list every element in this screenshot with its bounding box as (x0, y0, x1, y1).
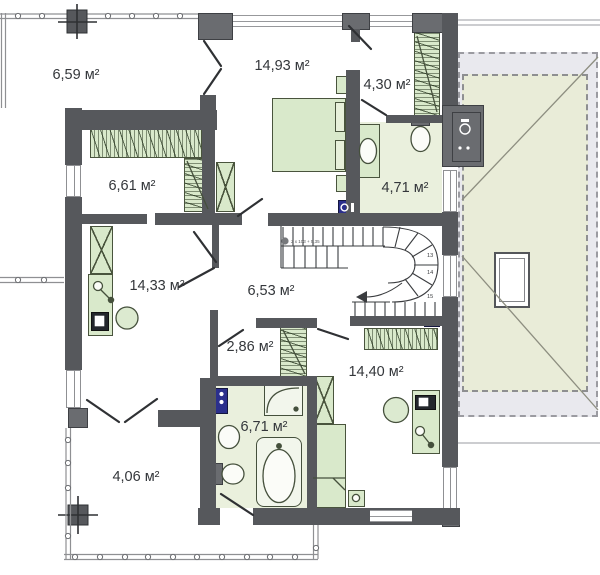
bathtub-basin (263, 450, 295, 503)
chimney-post (58, 4, 98, 534)
roof-ridge-lines (462, 57, 598, 410)
room-label-room-left: 14,33 м² (116, 278, 198, 294)
room-label-wardrobe: 4,30 м² (356, 77, 418, 93)
room-label-bath-right: 4,71 м² (372, 180, 438, 196)
room-label-bath-bottom: 6,71 м² (231, 419, 297, 435)
room-label-closet-left: 6,61 м² (96, 178, 168, 194)
chair (116, 307, 138, 329)
washbasin (360, 139, 377, 164)
desk-lamp (94, 282, 103, 291)
tub-faucet (277, 444, 282, 449)
room-label-bedroom-br: 14,40 м² (334, 364, 418, 380)
stair-note: 2 x 103 + 5,35 (291, 239, 320, 244)
room-label-balcony: 6,59 м² (38, 67, 114, 83)
stair-step-number: 15 (427, 294, 433, 300)
room-label-closet-mid: 2,86 м² (219, 339, 281, 355)
desk-lamp (416, 427, 425, 436)
toilet-bowl (222, 464, 244, 484)
stair-step-number: 13 (427, 253, 433, 259)
floor-plan: 2 x 103 + 5,35 13 14 15 (0, 0, 600, 575)
roof-lines (458, 20, 600, 443)
room-label-hallway: 6,53 м² (238, 283, 304, 299)
stair-step-number: 14 (427, 270, 433, 276)
nightstand-lamp (352, 494, 359, 501)
balcony-railing (0, 13, 198, 283)
chair (384, 398, 409, 423)
room-label-bedroom-top: 14,93 м² (240, 58, 324, 74)
room-label-terrace: 4,06 м² (99, 469, 173, 485)
stair-direction-arrow (356, 291, 367, 303)
shower-drain (294, 407, 298, 411)
stair-note-marker (281, 237, 288, 244)
toilet-bowl (411, 127, 430, 152)
railing-posts (15, 13, 182, 282)
appliance-details (219, 119, 470, 404)
